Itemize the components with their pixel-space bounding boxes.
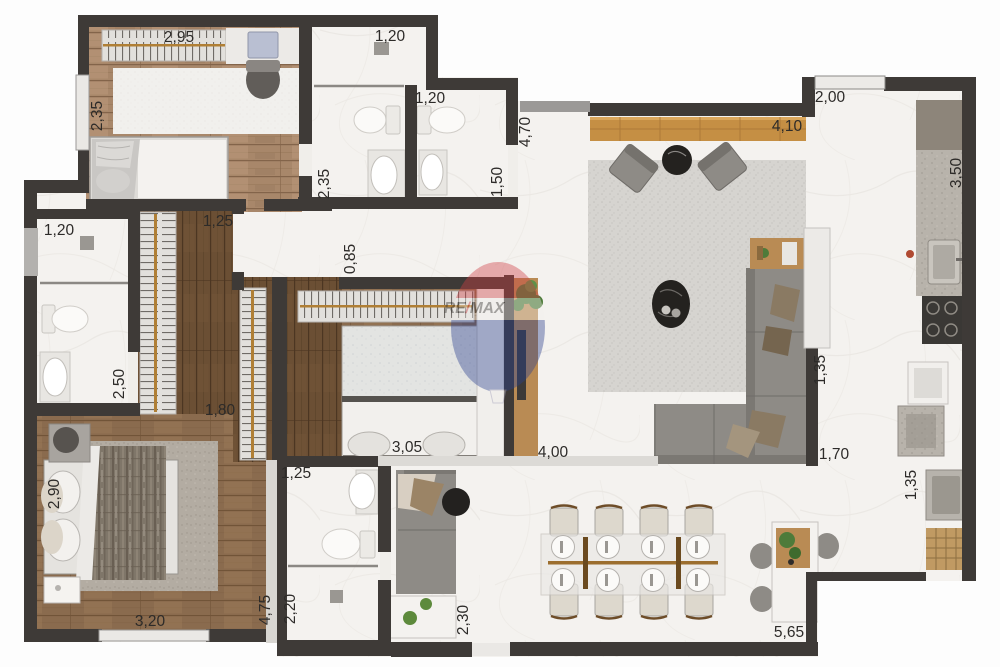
- svg-text:1,80: 1,80: [205, 402, 236, 419]
- svg-text:2,20: 2,20: [282, 594, 299, 625]
- svg-text:1,20: 1,20: [375, 28, 406, 45]
- svg-text:2,30: 2,30: [455, 605, 472, 636]
- svg-text:1,25: 1,25: [281, 465, 311, 482]
- svg-text:2,35: 2,35: [316, 169, 333, 199]
- svg-text:2,90: 2,90: [46, 479, 63, 510]
- svg-text:3,05: 3,05: [392, 439, 422, 456]
- svg-text:2,35: 2,35: [89, 101, 106, 131]
- svg-text:4,70: 4,70: [517, 117, 534, 148]
- svg-text:2,95: 2,95: [164, 29, 194, 46]
- svg-text:1,50: 1,50: [489, 167, 506, 198]
- svg-text:1,35: 1,35: [903, 470, 920, 500]
- svg-text:2,50: 2,50: [111, 369, 128, 400]
- svg-text:1,20: 1,20: [44, 222, 75, 239]
- svg-text:0,85: 0,85: [342, 244, 359, 274]
- svg-text:1,25: 1,25: [203, 213, 233, 230]
- svg-text:RE/MAX: RE/MAX: [444, 300, 506, 317]
- svg-text:3,20: 3,20: [135, 613, 166, 630]
- svg-text:1,20: 1,20: [415, 90, 446, 107]
- svg-text:2,00: 2,00: [815, 89, 846, 106]
- svg-text:4,00: 4,00: [538, 444, 569, 461]
- svg-text:5,65: 5,65: [774, 624, 804, 641]
- svg-text:3,50: 3,50: [948, 158, 965, 189]
- svg-text:1,35: 1,35: [812, 355, 829, 385]
- svg-text:1,70: 1,70: [819, 446, 850, 463]
- svg-text:4,10: 4,10: [772, 118, 803, 135]
- svg-text:4,75: 4,75: [257, 595, 274, 625]
